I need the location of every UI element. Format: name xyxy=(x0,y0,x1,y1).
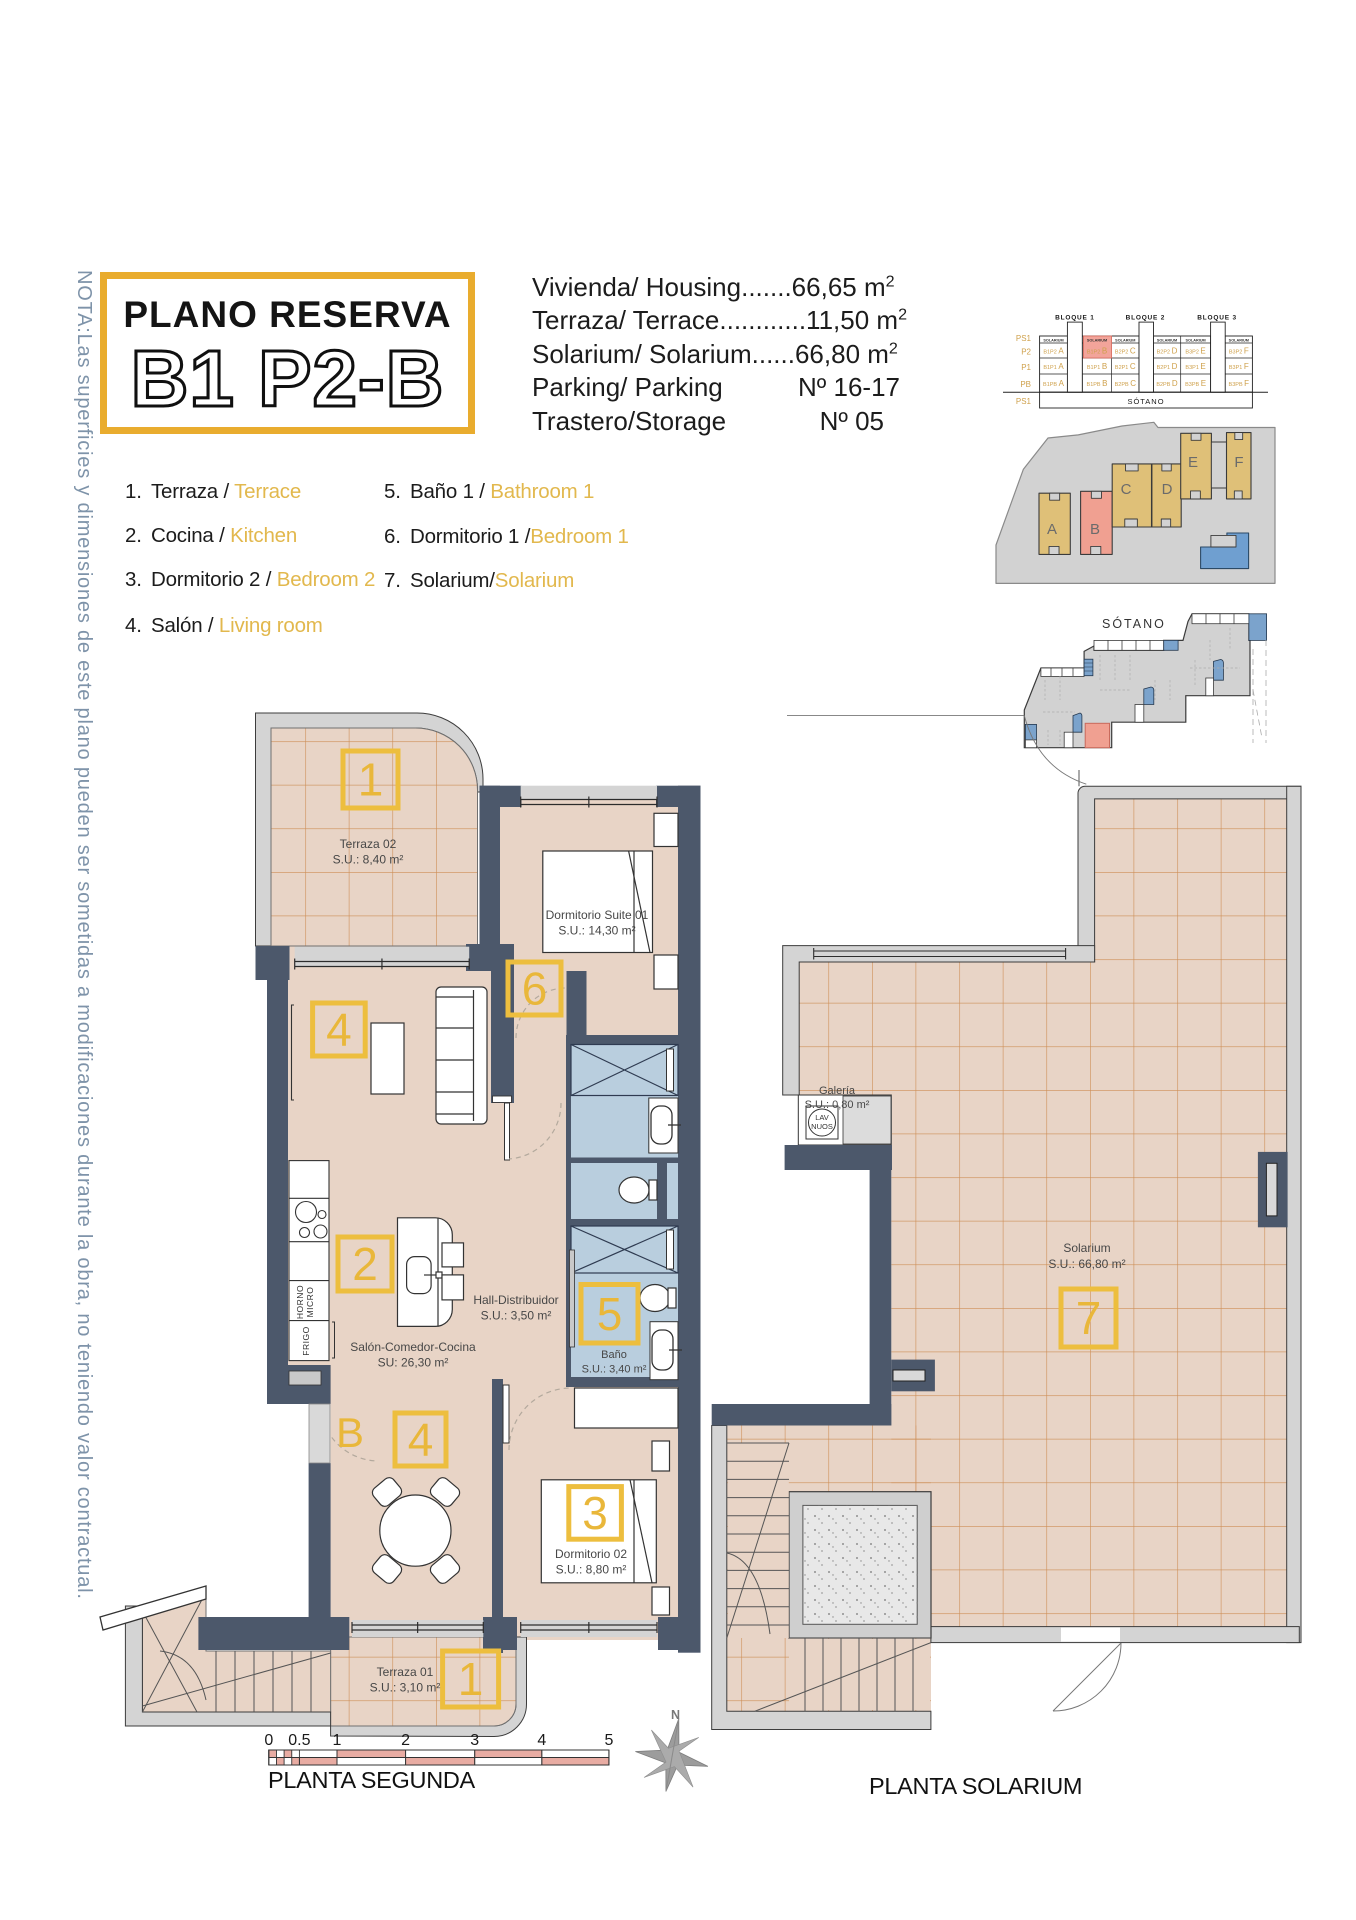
svg-text:4: 4 xyxy=(537,1732,546,1749)
svg-text:2: 2 xyxy=(352,1238,378,1290)
svg-text:S.U.: 66,80 m²: S.U.: 66,80 m² xyxy=(1048,1257,1125,1271)
svg-text:Baño: Baño xyxy=(601,1349,627,1361)
svg-text:SU: 26,30 m²: SU: 26,30 m² xyxy=(378,1356,449,1370)
svg-text:3: 3 xyxy=(582,1487,608,1539)
svg-text:PS1: PS1 xyxy=(1016,334,1032,343)
svg-text:S.U.: 0,80 m²: S.U.: 0,80 m² xyxy=(805,1099,870,1111)
svg-text:PB: PB xyxy=(1020,380,1031,389)
svg-text:SOLARIUM: SOLARIUM xyxy=(1043,338,1063,342)
svg-text:BLOQUE 1: BLOQUE 1 xyxy=(1055,315,1095,322)
svg-text:F: F xyxy=(1234,454,1243,471)
svg-text:6: 6 xyxy=(522,963,548,1015)
svg-text:SOLARIUM: SOLARIUM xyxy=(1115,338,1135,342)
svg-text:B: B xyxy=(1090,521,1100,538)
svg-text:SÓTANO: SÓTANO xyxy=(1102,616,1166,631)
svg-text:Galería: Galería xyxy=(819,1085,856,1097)
svg-text:2: 2 xyxy=(401,1732,410,1749)
svg-text:1: 1 xyxy=(458,1653,484,1705)
svg-text:Dormitorio 02: Dormitorio 02 xyxy=(555,1547,627,1561)
svg-text:7: 7 xyxy=(1076,1292,1102,1344)
svg-text:5: 5 xyxy=(597,1288,623,1340)
svg-text:3: 3 xyxy=(470,1732,479,1749)
svg-text:4: 4 xyxy=(408,1414,434,1466)
svg-text:PS1: PS1 xyxy=(1016,397,1032,406)
svg-text:C: C xyxy=(1121,481,1132,498)
svg-text:0.5: 0.5 xyxy=(288,1732,310,1749)
svg-text:Hall-Distribuidor: Hall-Distribuidor xyxy=(473,1293,558,1307)
svg-text:SOLARIUM: SOLARIUM xyxy=(1229,338,1249,342)
svg-text:S.U.: 8,80 m²: S.U.: 8,80 m² xyxy=(556,1563,627,1577)
svg-text:P2: P2 xyxy=(1021,348,1031,357)
svg-text:P1: P1 xyxy=(1021,363,1031,372)
svg-text:SOLARIUM: SOLARIUM xyxy=(1185,338,1205,342)
svg-text:SOLARIUM: SOLARIUM xyxy=(1087,338,1107,342)
svg-text:S.U.: 3,50 m²: S.U.: 3,50 m² xyxy=(481,1309,552,1323)
svg-text:Terraza 01: Terraza 01 xyxy=(377,1665,434,1679)
svg-text:0: 0 xyxy=(264,1732,273,1749)
svg-text:NUOS: NUOS xyxy=(811,1122,833,1131)
svg-text:E: E xyxy=(1188,454,1198,471)
svg-text:SOLARIUM: SOLARIUM xyxy=(1157,338,1177,342)
svg-text:S.U.: 8,40 m²: S.U.: 8,40 m² xyxy=(333,853,404,867)
svg-text:N: N xyxy=(671,1708,680,1722)
svg-text:PLANTA SEGUNDA: PLANTA SEGUNDA xyxy=(268,1767,476,1793)
svg-text:LAV: LAV xyxy=(815,1113,829,1122)
svg-text:S.U.: 3,10 m²: S.U.: 3,10 m² xyxy=(370,1681,441,1695)
svg-text:A: A xyxy=(1047,521,1057,538)
svg-text:SÓTANO: SÓTANO xyxy=(1127,397,1164,406)
svg-text:Terraza 02: Terraza 02 xyxy=(340,837,397,851)
svg-text:1: 1 xyxy=(358,754,384,806)
svg-text:B: B xyxy=(336,1409,364,1456)
svg-text:5: 5 xyxy=(604,1732,613,1749)
svg-text:Solarium: Solarium xyxy=(1063,1241,1110,1255)
svg-text:S.U.: 3,40 m²: S.U.: 3,40 m² xyxy=(582,1364,647,1376)
svg-text:BLOQUE 2: BLOQUE 2 xyxy=(1126,315,1166,322)
svg-text:Dormitorio Suite 01: Dormitorio Suite 01 xyxy=(546,908,649,922)
svg-text:S.U.: 14,30 m²: S.U.: 14,30 m² xyxy=(558,924,635,938)
svg-text:MICRO: MICRO xyxy=(305,1287,315,1318)
svg-text:HORNO: HORNO xyxy=(295,1285,305,1319)
svg-text:D: D xyxy=(1162,481,1173,498)
svg-text:FRIGO: FRIGO xyxy=(301,1326,311,1355)
svg-text:1: 1 xyxy=(333,1732,342,1749)
svg-text:BLOQUE 3: BLOQUE 3 xyxy=(1197,315,1237,322)
svg-text:Salón-Comedor-Cocina: Salón-Comedor-Cocina xyxy=(350,1340,476,1354)
svg-text:4: 4 xyxy=(326,1004,352,1056)
svg-text:PLANTA SOLARIUM: PLANTA SOLARIUM xyxy=(869,1773,1082,1799)
